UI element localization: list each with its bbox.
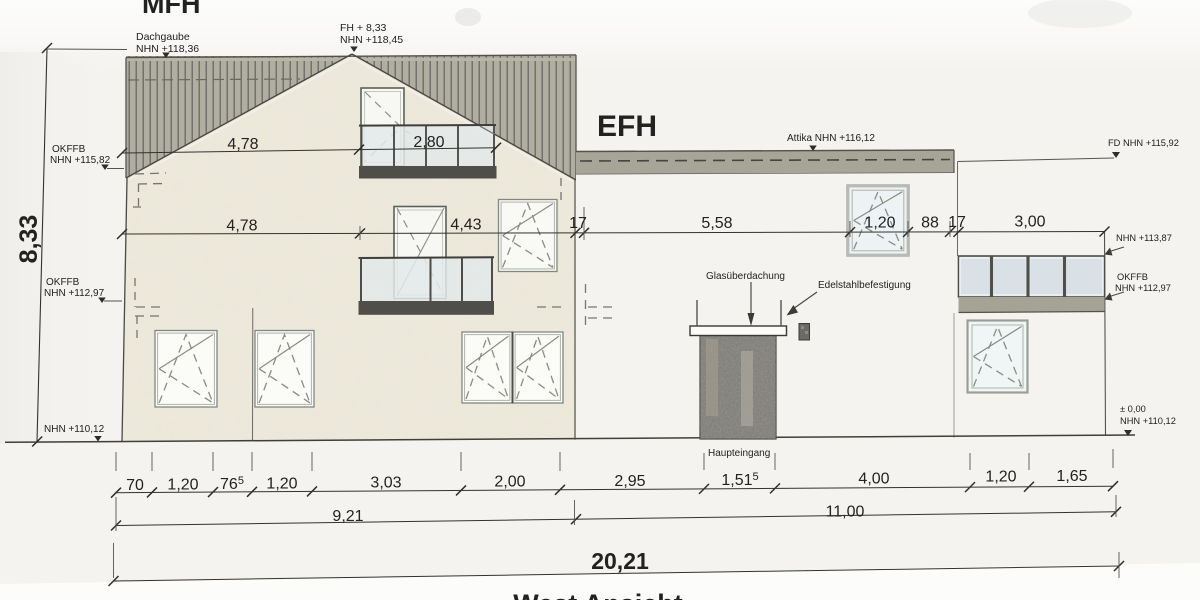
- svg-text:FD NHN +115,92: FD NHN +115,92: [1108, 138, 1179, 148]
- svg-text:Dachgaube: Dachgaube: [136, 31, 190, 43]
- svg-text:NHN +112,97: NHN +112,97: [1115, 283, 1171, 293]
- svg-text:4,00: 4,00: [858, 471, 889, 488]
- svg-text:3,03: 3,03: [370, 475, 401, 492]
- svg-text:± 0,00: ± 0,00: [1120, 404, 1146, 414]
- svg-text:Attika NHN +116,12: Attika NHN +116,12: [787, 133, 875, 144]
- svg-text:4,78: 4,78: [226, 218, 257, 235]
- svg-text:Haupteingang: Haupteingang: [708, 448, 770, 459]
- svg-text:Edelstahlbefestigung: Edelstahlbefestigung: [818, 280, 911, 291]
- svg-text:NHN +112,97: NHN +112,97: [44, 288, 105, 299]
- svg-text:EFH: EFH: [597, 110, 657, 143]
- svg-text:OKFFB: OKFFB: [46, 277, 80, 288]
- svg-text:1,20: 1,20: [985, 469, 1016, 486]
- svg-text:5,58: 5,58: [701, 215, 732, 232]
- svg-text:NHN +110,12: NHN +110,12: [44, 424, 105, 435]
- svg-text:17: 17: [569, 215, 587, 232]
- svg-text:Glasüberdachung: Glasüberdachung: [706, 271, 785, 282]
- svg-text:1,65: 1,65: [1056, 468, 1087, 485]
- svg-text:11,00: 11,00: [826, 504, 865, 521]
- svg-text:2,80: 2,80: [413, 134, 444, 151]
- svg-text:2,95: 2,95: [614, 473, 645, 490]
- svg-text:1,20: 1,20: [167, 477, 198, 494]
- svg-text:2,00: 2,00: [494, 474, 525, 491]
- svg-text:MFH: MFH: [142, 0, 200, 19]
- svg-text:OKFFB: OKFFB: [52, 144, 86, 155]
- svg-text:8,33: 8,33: [15, 215, 43, 264]
- svg-text:1,20: 1,20: [864, 215, 895, 232]
- svg-text:NHN +118,45: NHN +118,45: [340, 34, 403, 46]
- svg-text:FH + 8,33: FH + 8,33: [340, 22, 387, 34]
- svg-text:West Ansicht: West Ansicht: [513, 589, 683, 600]
- svg-text:88: 88: [921, 215, 939, 232]
- svg-text:17: 17: [948, 214, 966, 231]
- svg-text:9,21: 9,21: [332, 508, 363, 525]
- svg-text:NHN +113,87: NHN +113,87: [1116, 233, 1172, 243]
- svg-text:4,43: 4,43: [450, 217, 481, 234]
- svg-text:1,20: 1,20: [266, 476, 297, 493]
- svg-text:NHN +115,82: NHN +115,82: [50, 155, 111, 166]
- svg-text:20,21: 20,21: [591, 548, 649, 574]
- svg-text:OKFFB: OKFFB: [1117, 272, 1148, 282]
- svg-text:3,00: 3,00: [1014, 214, 1045, 231]
- svg-text:NHN +110,12: NHN +110,12: [1120, 416, 1176, 426]
- svg-text:70: 70: [126, 477, 144, 494]
- svg-text:4,78: 4,78: [227, 136, 258, 153]
- svg-text:NHN +118,36: NHN +118,36: [136, 43, 199, 55]
